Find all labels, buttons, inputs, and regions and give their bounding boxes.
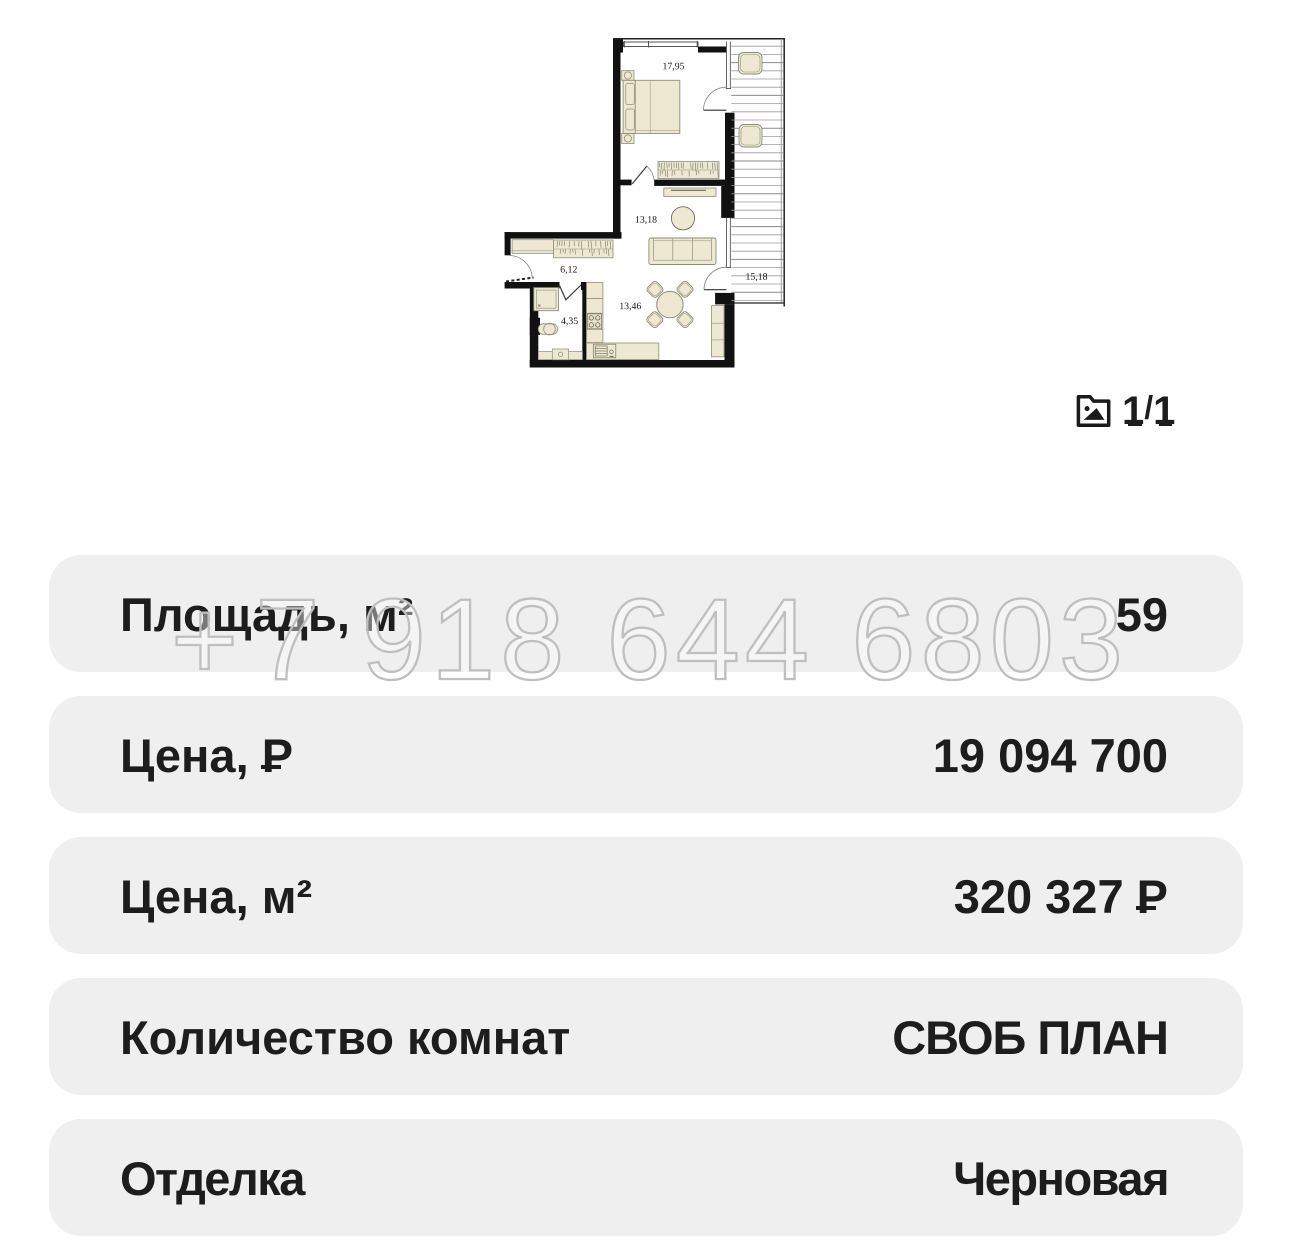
- svg-text:+7 918 644 6803: +7 918 644 6803: [171, 576, 1123, 704]
